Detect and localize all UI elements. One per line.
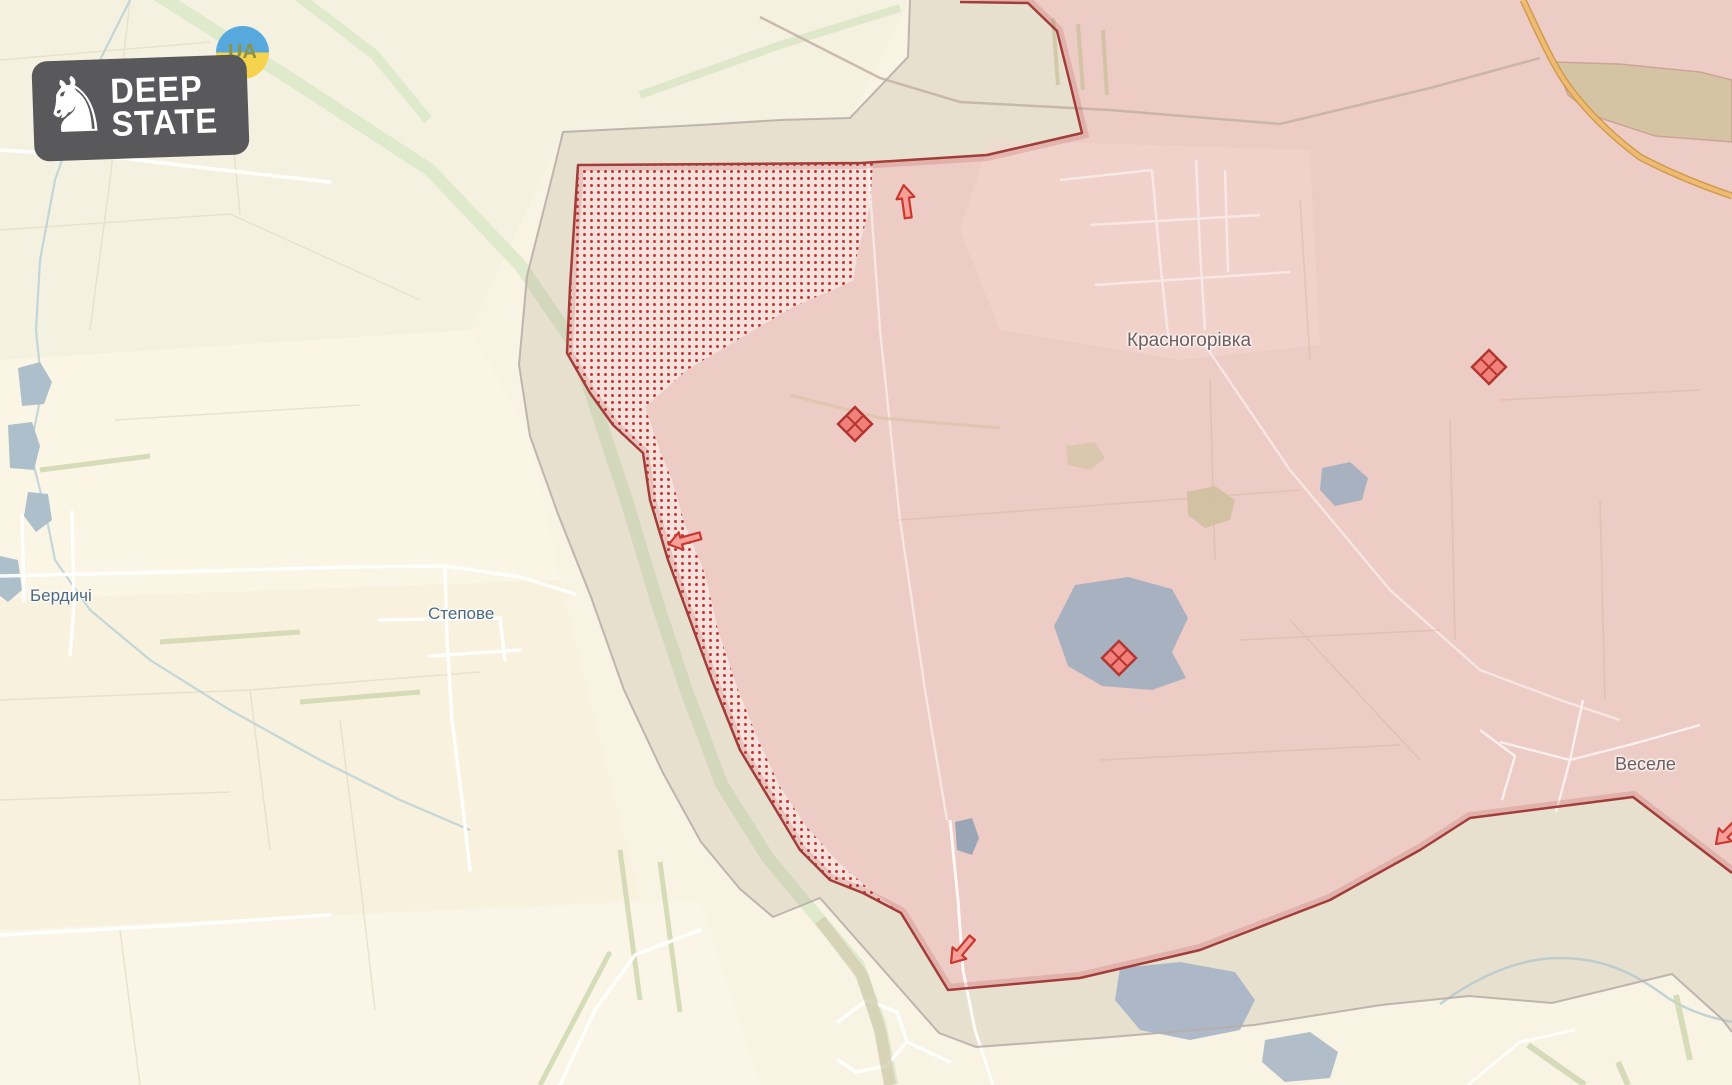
deepstate-logo[interactable]: ♞ DEEP STATE — [31, 54, 249, 161]
place-label-stepove: Степове — [428, 604, 494, 624]
place-label-krasnohorivka: Красногорівка — [1127, 330, 1251, 352]
map-app: Бердичі Степове Красногорівка Веселе UA … — [0, 0, 1732, 1085]
map-canvas[interactable] — [0, 0, 1732, 1085]
chess-knight-icon: ♞ — [40, 66, 111, 144]
place-label-vesele: Веселе — [1615, 754, 1676, 775]
logo-title-line2: STATE — [111, 104, 219, 141]
logo-title: DEEP STATE — [110, 71, 219, 141]
place-label-berdychi: Бердичі — [30, 586, 92, 606]
